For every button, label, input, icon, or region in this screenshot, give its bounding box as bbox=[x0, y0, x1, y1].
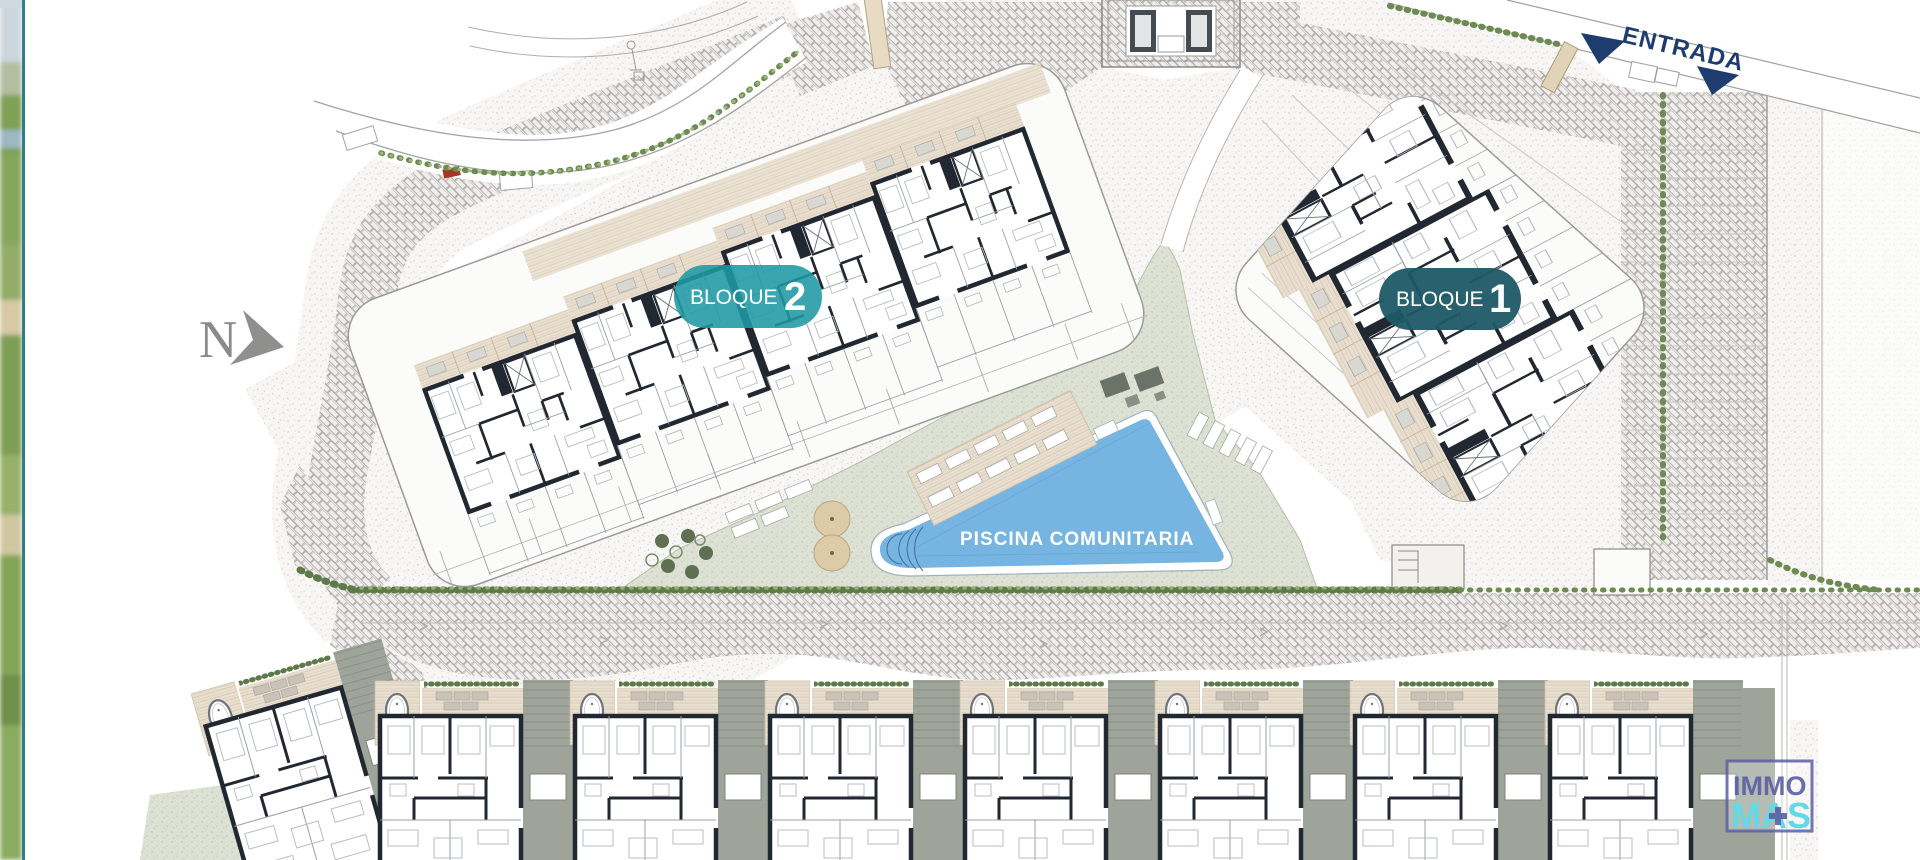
svg-text:1: 1 bbox=[1489, 277, 1511, 321]
svg-text:N: N bbox=[199, 311, 237, 369]
svg-text:2: 2 bbox=[784, 275, 806, 319]
svg-text:PISCINA COMUNITARIA: PISCINA COMUNITARIA bbox=[960, 529, 1194, 550]
svg-text:BLOQUE: BLOQUE bbox=[1396, 288, 1484, 311]
svg-text:BLOQUE: BLOQUE bbox=[690, 286, 778, 309]
